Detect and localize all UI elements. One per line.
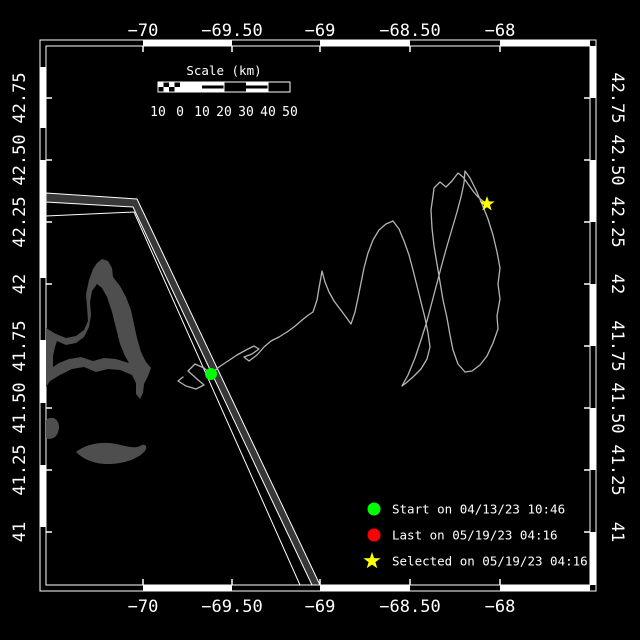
scale-label: 40 — [260, 105, 276, 120]
frame-segment — [590, 46, 596, 98]
traffic-lane-boundary-line — [46, 212, 300, 585]
nantucket-island — [76, 443, 146, 464]
scale-bar-stripe — [246, 86, 268, 89]
legend-last-icon — [368, 529, 381, 542]
scale-label: 10 — [150, 105, 166, 120]
x-axis-bottom: −70 −69.50 −69 −68.50 −68 — [128, 597, 516, 617]
y-tick-label: 41.50 — [607, 382, 627, 433]
frame-segment — [590, 284, 596, 346]
x-tick-label: −69.50 — [201, 597, 262, 617]
y-axis-left: 42.75 42.50 42.25 42 41.75 41.50 41.25 4… — [10, 72, 30, 542]
scale-label: 0 — [176, 105, 184, 120]
legend-selected-star-icon — [363, 552, 380, 568]
cape-cod-landmass — [46, 259, 151, 399]
y-tick-label: 42.50 — [10, 134, 30, 185]
y-tick-label: 41 — [10, 522, 30, 542]
frame-segment — [500, 585, 590, 591]
frame-segment — [590, 408, 596, 470]
y-tick-label: 41.50 — [10, 382, 30, 433]
scale-label: 50 — [282, 105, 298, 120]
frame-segment — [320, 585, 410, 591]
y-tick-label: 42.50 — [607, 134, 627, 185]
x-axis-top: −70 −69.50 −69 −68.50 −68 — [128, 21, 516, 41]
traffic-separation-zone — [46, 193, 320, 585]
y-tick-label: 41 — [607, 522, 627, 542]
coastline-layer — [46, 259, 151, 464]
frame-segment — [40, 340, 46, 403]
scale-bar-labels: 10 0 10 20 30 40 50 — [150, 105, 298, 120]
y-tick-label: 42 — [607, 274, 627, 294]
legend: Start on 04/13/23 10:46 Last on 05/19/23… — [363, 502, 587, 569]
y-tick-label: 41.75 — [607, 320, 627, 371]
frame-segment — [590, 532, 596, 585]
x-tick-label: −68 — [485, 21, 516, 41]
y-tick-label: 42.75 — [10, 72, 30, 123]
glider-track-line[interactable] — [178, 171, 500, 389]
legend-selected-label: Selected on 05/19/23 04:16 — [392, 554, 588, 569]
y-tick-label: 42 — [10, 274, 30, 294]
scale-label: 10 — [194, 105, 210, 120]
scale-bar-title: Scale (km) — [186, 63, 261, 78]
scale-bar: Scale (km) 10 0 10 20 30 40 50 — [150, 63, 298, 120]
shipping-lane-layer — [46, 193, 320, 585]
x-tick-label: −69.50 — [201, 21, 262, 41]
y-tick-label: 42.25 — [10, 196, 30, 247]
legend-start-label: Start on 04/13/23 10:46 — [392, 502, 565, 517]
x-tick-label: −68.50 — [379, 597, 440, 617]
frame-segment — [40, 67, 46, 128]
y-tick-label: 41.25 — [10, 444, 30, 495]
legend-start-icon — [368, 503, 381, 516]
start-position-marker[interactable] — [205, 368, 217, 380]
x-tick-label: −69 — [305, 597, 336, 617]
frame-segment — [143, 585, 232, 591]
y-tick-label: 42.75 — [607, 72, 627, 123]
x-tick-label: −69 — [305, 21, 336, 41]
scale-label: 30 — [238, 105, 254, 120]
scale-bar-stripe — [202, 86, 224, 89]
x-tick-label: −70 — [128, 597, 159, 617]
marthas-vineyard-island — [46, 418, 59, 439]
frame-segment — [40, 465, 46, 527]
frame-segment — [590, 160, 596, 222]
y-tick-label: 41.75 — [10, 320, 30, 371]
x-tick-label: −68 — [485, 597, 516, 617]
x-tick-label: −68.50 — [379, 21, 440, 41]
frame-segment — [40, 160, 46, 278]
legend-last-label: Last on 05/19/23 04:16 — [392, 528, 558, 543]
x-tick-label: −70 — [128, 21, 159, 41]
scale-label: 20 — [216, 105, 232, 120]
glider-track-map-viewer: −70 −69.50 −69 −68.50 −68 −70 −69.50 −69… — [0, 0, 640, 640]
map-canvas[interactable]: −70 −69.50 −69 −68.50 −68 −70 −69.50 −69… — [0, 0, 640, 640]
y-tick-label: 42.25 — [607, 196, 627, 247]
y-axis-right: 42.75 42.50 42.25 42 41.75 41.50 41.25 4… — [607, 72, 627, 542]
y-tick-label: 41.25 — [607, 444, 627, 495]
